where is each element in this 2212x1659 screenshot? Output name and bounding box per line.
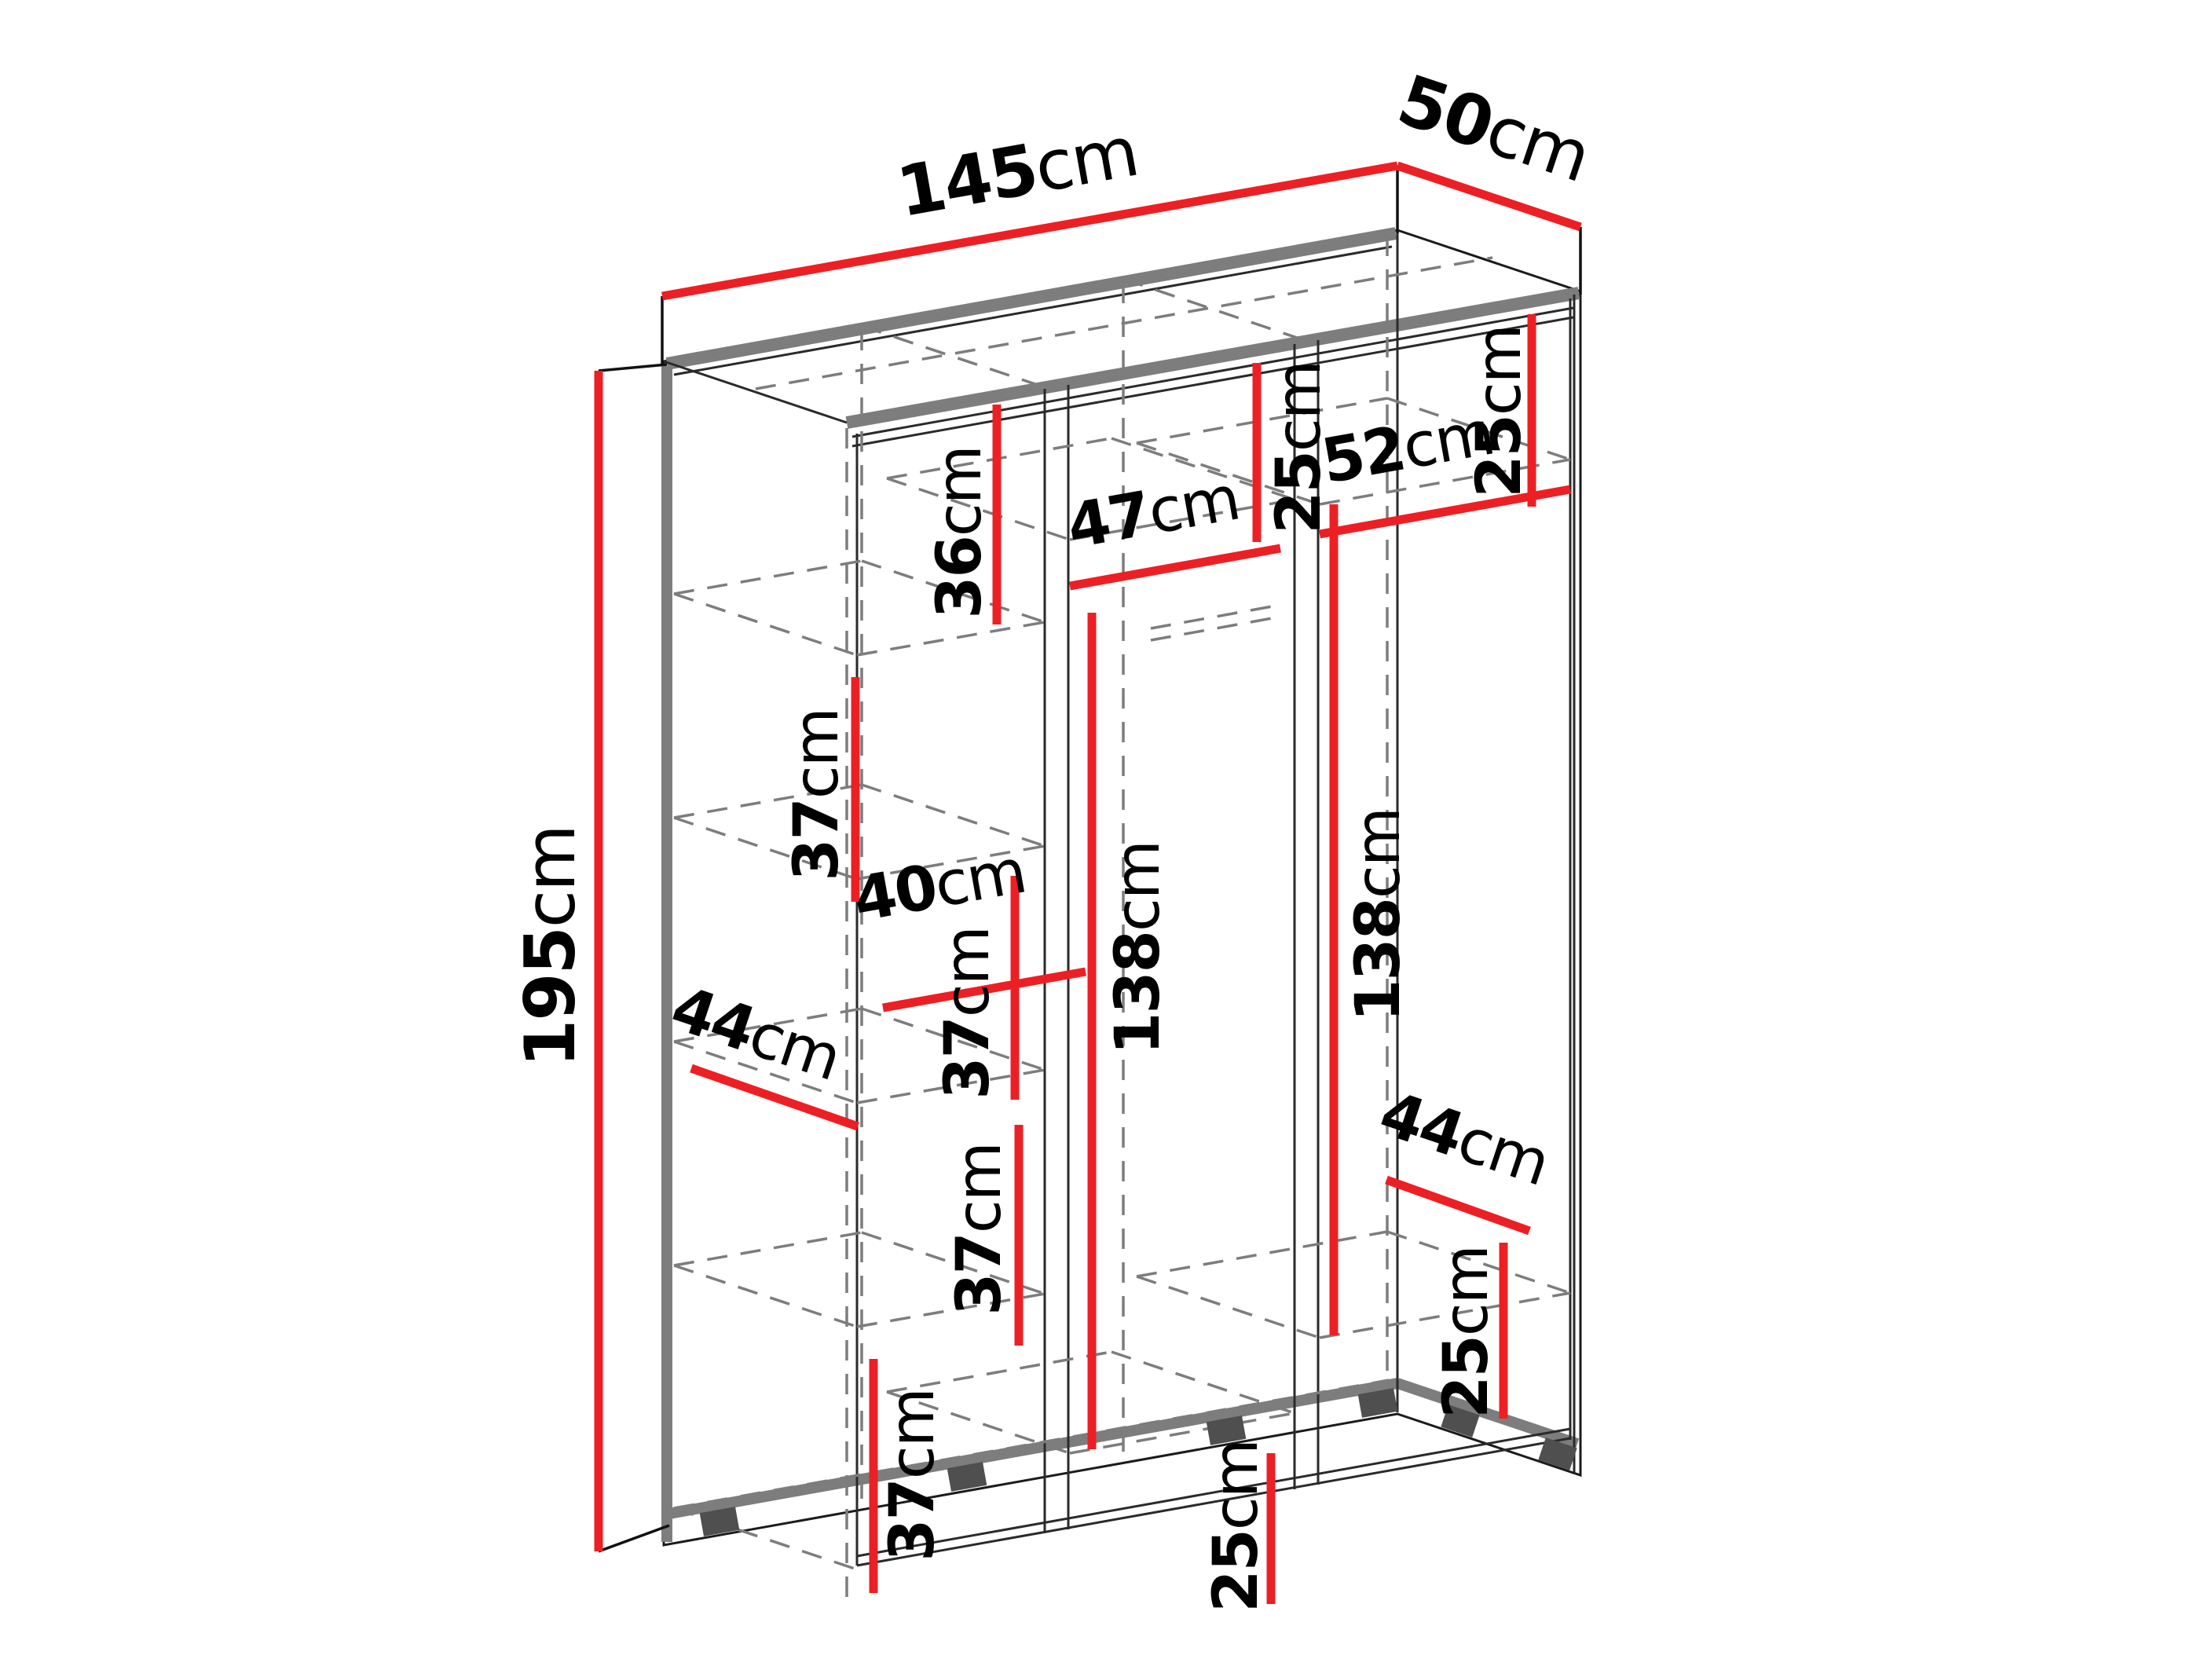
label-left-37b: 37cm (932, 927, 1003, 1099)
label-left-bottom-37: 37cm (877, 1389, 948, 1561)
wardrobe-dimension-diagram: 145cm 50cm 195cm 36cm 37cm 40cm 37cm 37c… (0, 0, 2212, 1659)
diagram-canvas: 145cm 50cm 195cm 36cm 37cm 40cm 37cm 37c… (0, 0, 2212, 1659)
label-left-37c: 37cm (944, 1143, 1015, 1315)
label-left-37a: 37cm (782, 709, 852, 881)
label-middle-bottom-25: 25cm (1201, 1440, 1272, 1612)
label-right-bottom-25: 25cm (1431, 1246, 1502, 1418)
label-middle-138: 138cm (1103, 841, 1174, 1055)
label-overall-height: 195cm (510, 826, 591, 1068)
label-right-top-25: 25cm (1464, 325, 1535, 497)
label-right-138: 138cm (1343, 808, 1414, 1022)
label-left-top-36: 36cm (925, 446, 995, 618)
